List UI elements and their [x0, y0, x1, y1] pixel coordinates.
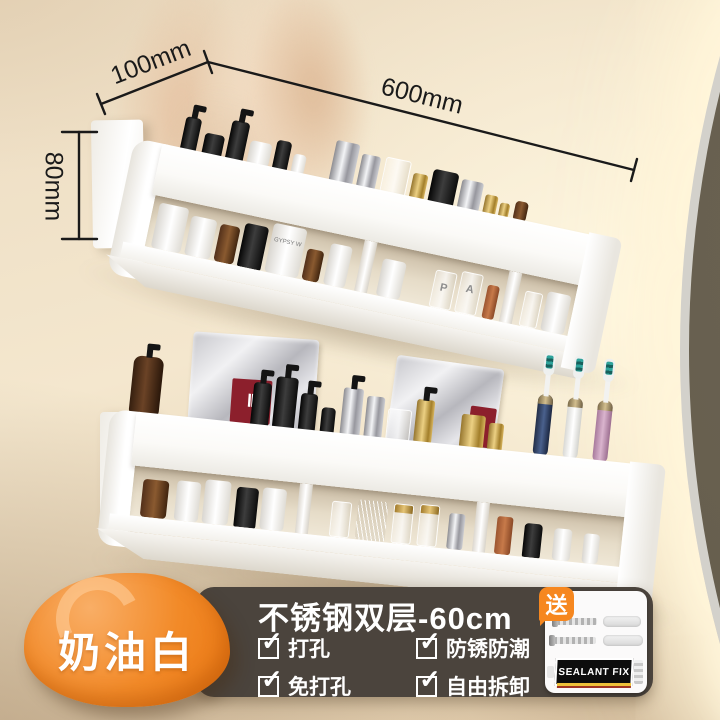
tube-nozzle: [634, 660, 643, 684]
bottle-in-shelf: [151, 202, 190, 253]
rail-support-post: [499, 271, 523, 325]
feature-label: 防锈防潮: [446, 633, 530, 663]
glass-jar: [385, 408, 412, 442]
bottle-in-shelf: [376, 258, 407, 300]
sealant-label-stripes: [557, 683, 631, 688]
product-photo: GYPSY W P A Ⅱ Ⅱ: [0, 0, 720, 720]
silver-bottle: [446, 513, 466, 550]
sealant-label: SEALANT FIX: [554, 658, 633, 686]
rail-support-post: [472, 502, 490, 553]
silver-pump-bottle: [339, 387, 364, 437]
silver-bottle: [363, 396, 385, 440]
clear-bottle: A: [454, 271, 484, 317]
gold-canister: [459, 414, 486, 450]
tube-cap: [547, 666, 554, 678]
gold-cap-bottle: [416, 504, 440, 548]
gold-cap-bottle: [390, 503, 414, 545]
dimension-label-height: 80mm: [39, 140, 68, 234]
feature-item: ✓ 免打孔: [258, 671, 398, 701]
feature-item: ✓ 打孔: [258, 633, 398, 663]
gold-canister: [487, 423, 505, 452]
labeled-bottle: GYPSY W: [264, 223, 308, 279]
wall-anchor: [603, 635, 643, 646]
feature-label: 自由拆卸: [446, 671, 530, 701]
bottle-in-shelf: [184, 215, 218, 260]
screw: [554, 637, 596, 644]
rail-support-post: [354, 240, 378, 294]
bottle-letter: A: [459, 282, 481, 298]
clear-bottle: [518, 290, 543, 329]
toothbrush-base: [551, 528, 572, 562]
dark-bottle: [237, 223, 270, 271]
rail-support-post: [295, 483, 313, 534]
feature-label: 免打孔: [288, 671, 351, 701]
gift-accessories-box: 送 SEALANT FIX: [545, 591, 647, 693]
amber-bottle: [301, 248, 324, 283]
dark-bottle: [233, 487, 259, 529]
color-swatch-label: 奶油白: [24, 619, 230, 680]
soap-dispenser-bottle: [129, 355, 165, 416]
info-banner: 不锈钢双层-60cm ✓ 打孔 ✓ 防锈防潮 ✓ 免打孔 ✓ 自由拆卸 送: [196, 587, 653, 697]
feature-item: ✓ 防锈防潮: [416, 633, 530, 663]
orange-vial: [481, 284, 500, 320]
amber-bottle: [213, 224, 240, 265]
toothbrush-base: [581, 533, 600, 565]
checkbox-checked-icon: ✓: [416, 638, 437, 659]
feature-label: 打孔: [288, 633, 330, 663]
checkbox-checked-icon: ✓: [258, 638, 279, 659]
toothbrush-base: [522, 523, 543, 559]
wire-whisk-texture: [355, 499, 389, 542]
bottle-label-text: GYPSY W: [270, 236, 305, 249]
gift-badge: 送: [539, 587, 574, 621]
checkbox-checked-icon: ✓: [416, 676, 437, 697]
clear-bottle: [329, 501, 353, 539]
bottle-in-shelf: [540, 291, 572, 335]
wall-anchor: [603, 616, 641, 627]
sealant-label-text: SEALANT FIX: [558, 667, 630, 678]
feature-item: ✓ 自由拆卸: [416, 671, 530, 701]
feature-list: ✓ 打孔 ✓ 防锈防潮 ✓ 免打孔 ✓ 自由拆卸: [258, 633, 530, 701]
amber-jar: [140, 479, 170, 520]
clear-bottle: P: [428, 269, 457, 311]
checkbox-checked-icon: ✓: [258, 676, 279, 697]
bottle-in-shelf: [174, 480, 202, 522]
orange-bottle: [494, 516, 514, 555]
bottle-in-shelf: [323, 243, 353, 289]
pump-bottle: [298, 393, 319, 433]
color-swatch-badge: 奶油白: [24, 573, 230, 707]
bottle-in-shelf: [201, 479, 231, 525]
bottle-letter: P: [433, 280, 455, 296]
sealant-tube: SEALANT FIX: [549, 657, 643, 687]
product-title: 不锈钢双层-60cm: [258, 593, 513, 638]
bottle-in-shelf: [259, 487, 287, 531]
